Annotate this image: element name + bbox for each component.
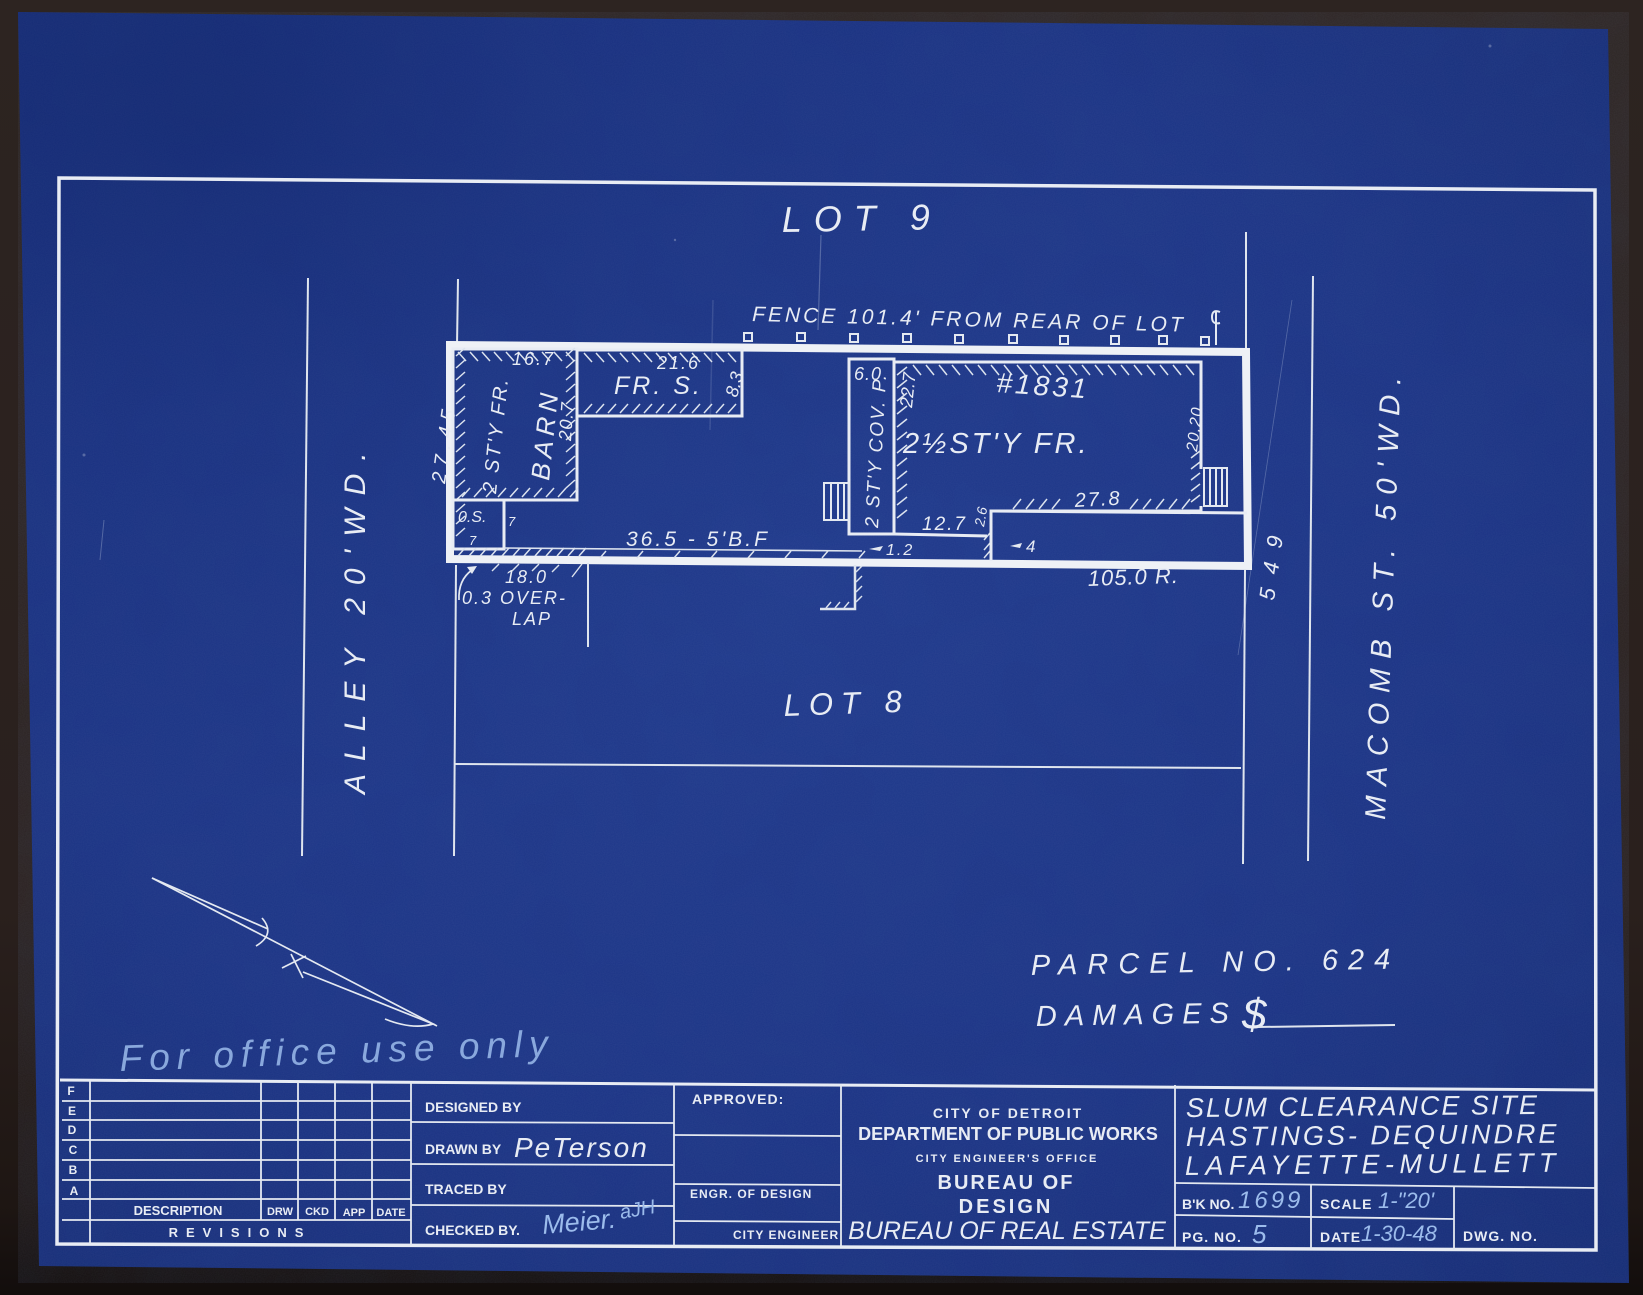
svg-text:2½ST'Y FR.: 2½ST'Y FR. [902,428,1090,460]
svg-text:CHECKED BY.: CHECKED BY. [425,1222,520,1238]
svg-text:DESIGNED BY: DESIGNED BY [425,1099,522,1115]
svg-text:18.0: 18.0 [505,567,548,587]
svg-text:7: 7 [469,533,477,548]
svg-text:PARCEL NO. 624: PARCEL NO. 624 [1031,944,1401,982]
svg-text:LAFAYETTE-MULLETT: LAFAYETTE-MULLETT [1185,1148,1561,1181]
svg-text:DRAWN BY: DRAWN BY [425,1141,502,1157]
svg-text:12.7: 12.7 [922,514,967,535]
svg-text:D: D [68,1123,77,1137]
svg-text:22.7: 22.7 [896,371,920,410]
svg-text:A: A [70,1184,79,1198]
svg-text:CKD: CKD [305,1206,329,1218]
svg-text:7: 7 [508,514,516,529]
svg-text:20.7: 20.7 [555,401,578,442]
svg-text:HASTINGS- DEQUINDRE: HASTINGS- DEQUINDRE [1186,1119,1560,1152]
svg-text:BUREAU OF REAL ESTATE: BUREAU OF REAL ESTATE [848,1217,1166,1245]
svg-text:ENGR. OF DESIGN: ENGR. OF DESIGN [690,1187,812,1201]
svg-text:TRACED BY: TRACED BY [425,1181,507,1197]
svg-text:APPROVED:: APPROVED: [692,1091,784,1107]
svg-text:LAP: LAP [512,609,552,629]
svg-text:REVISIONS: REVISIONS [169,1225,312,1240]
svg-text:DESIGN: DESIGN [959,1196,1054,1218]
svg-text:DRW: DRW [267,1206,294,1218]
svg-text:0.3 OVER-: 0.3 OVER- [462,588,567,608]
svg-text:4: 4 [1026,537,1035,556]
svg-text:DEPARTMENT OF PUBLIC WORKS: DEPARTMENT OF PUBLIC WORKS [858,1124,1158,1144]
svg-text:SLUM CLEARANCE SITE: SLUM CLEARANCE SITE [1186,1090,1539,1123]
svg-text:1-"20': 1-"20' [1378,1188,1435,1213]
svg-text:$: $ [1241,990,1268,1039]
svg-text:36.5 - 5'B.F: 36.5 - 5'B.F [626,528,770,551]
svg-text:CITY ENGINEER: CITY ENGINEER [733,1228,839,1242]
svg-text:CITY OF DETROIT: CITY OF DETROIT [933,1105,1083,1121]
svg-text:LOT 8: LOT 8 [783,684,910,723]
svg-text:DWG. NO.: DWG. NO. [1463,1228,1538,1244]
svg-text:APP: APP [343,1207,366,1219]
svg-text:5: 5 [1252,1219,1267,1249]
svg-text:PeTerson: PeTerson [514,1132,649,1163]
svg-text:E: E [68,1104,76,1118]
svg-text:21.6: 21.6 [656,353,700,373]
svg-text:B'K NO.: B'K NO. [1182,1196,1234,1212]
svg-text:F: F [67,1084,74,1098]
svg-text:#1831: #1831 [996,367,1091,404]
svg-text:LOT 9: LOT 9 [781,196,942,240]
svg-text:0.S.: 0.S. [458,509,486,526]
svg-text:DATE: DATE [376,1207,405,1219]
svg-text:1-30-48: 1-30-48 [1361,1221,1438,1246]
svg-text:BUREAU OF: BUREAU OF [938,1172,1075,1194]
svg-text:PG. NO.: PG. NO. [1182,1229,1242,1245]
svg-text:ALLEY 20'WD.: ALLEY 20'WD. [339,439,372,796]
svg-text:16.7: 16.7 [512,349,555,369]
svg-text:DATE: DATE [1320,1229,1361,1245]
svg-text:27.8: 27.8 [1073,488,1122,512]
svg-text:C: C [69,1143,78,1157]
svg-text:1.2: 1.2 [886,542,914,559]
svg-text:B: B [69,1163,78,1177]
svg-text:FR. S.: FR. S. [614,372,703,400]
svg-text:CITY ENGINEER'S OFFICE: CITY ENGINEER'S OFFICE [916,1153,1099,1165]
svg-text:DAMAGES: DAMAGES [1036,997,1238,1033]
svg-text:SCALE: SCALE [1320,1196,1372,1212]
svg-text:Meier.: Meier. [541,1204,617,1240]
svg-text:1699: 1699 [1238,1187,1303,1214]
svg-text:DESCRIPTION: DESCRIPTION [134,1203,223,1218]
svg-text:105.0 R.: 105.0 R. [1087,563,1179,591]
